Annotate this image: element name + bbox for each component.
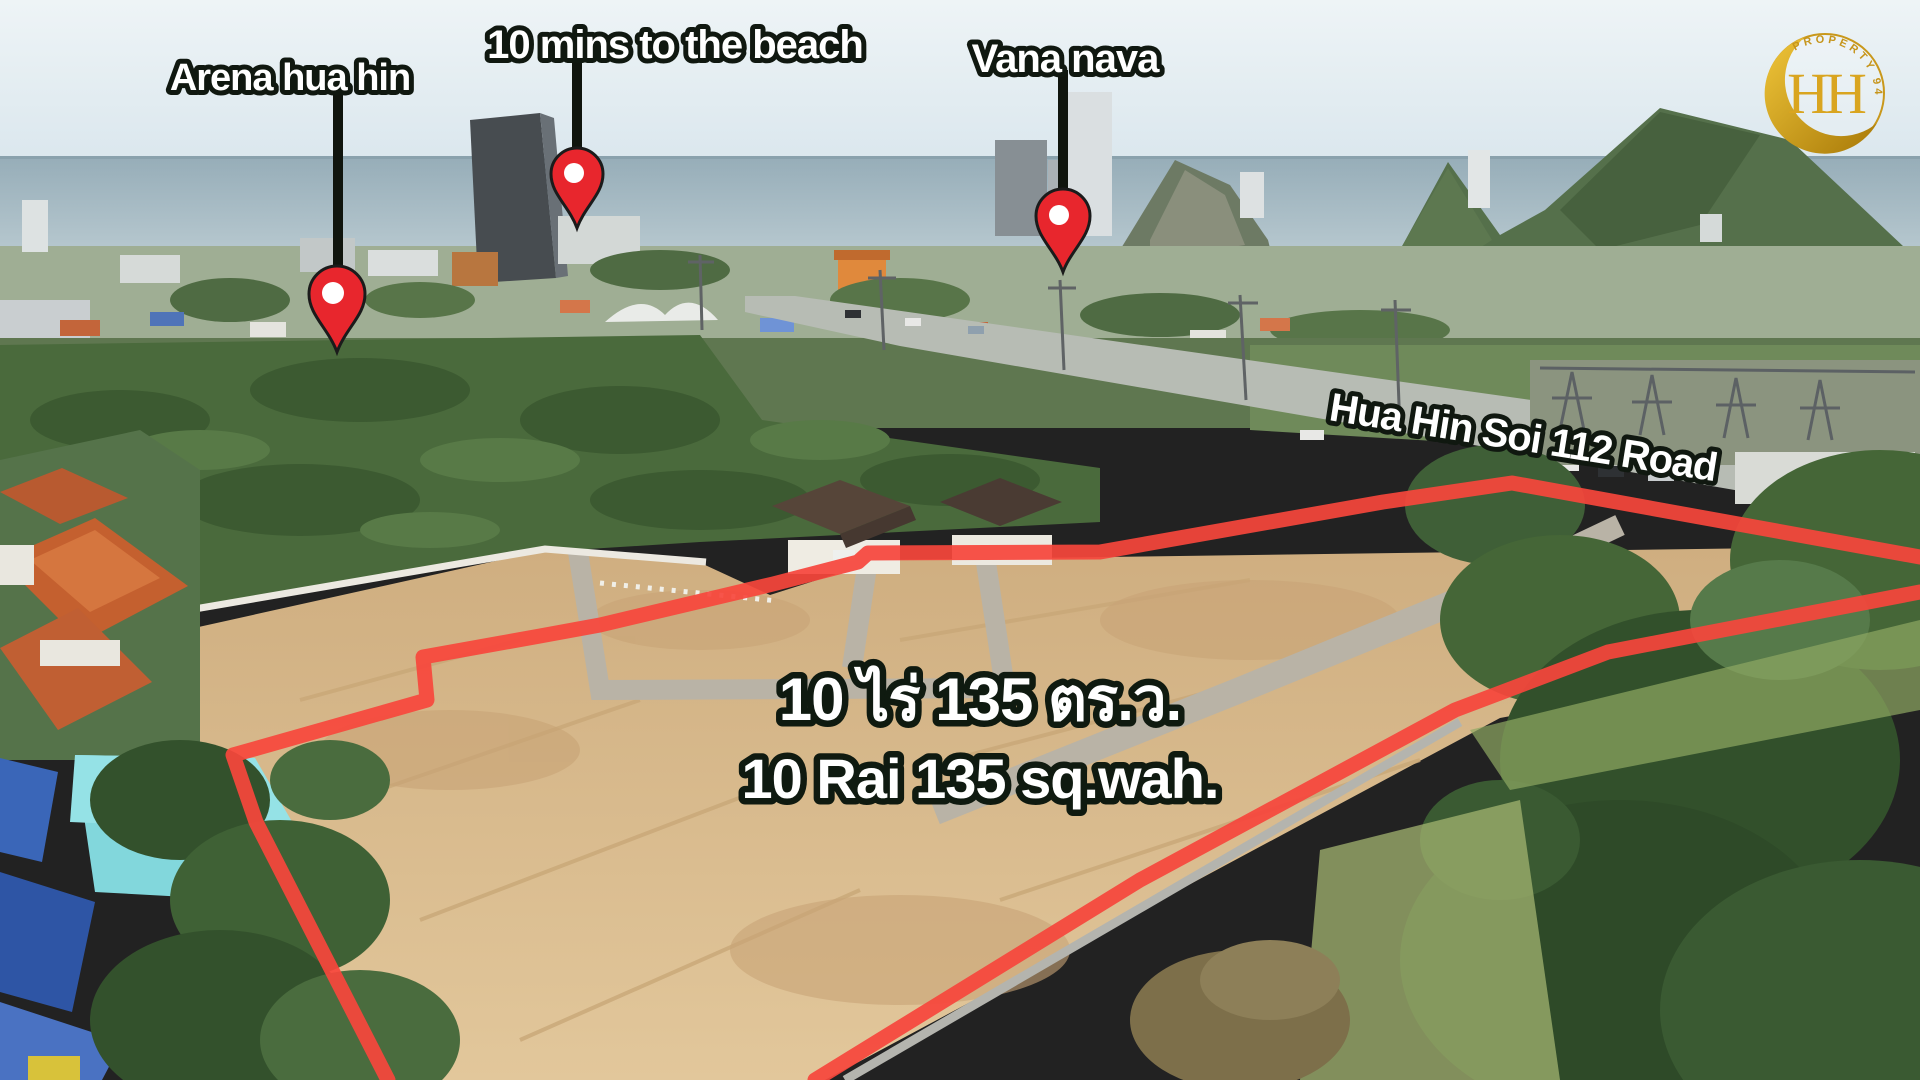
- pin-dot: [564, 163, 584, 183]
- label-10-mins-to-beach: 10 mins to the beach: [487, 23, 863, 67]
- label-arena-hua-hin: Arena hua hin: [170, 57, 410, 99]
- pin-dot: [322, 282, 344, 304]
- pin-dot: [1049, 205, 1069, 225]
- brand-logo: HH PROPERTY 94: [1765, 34, 1884, 154]
- area-size-thai: 10 ไร่ 135 ตร.ว.: [779, 664, 1181, 733]
- aerial-photo-stage: Arena hua hin 10 mins to the beach Vana …: [0, 0, 1920, 1080]
- label-vana-nava: Vana nava: [972, 37, 1160, 81]
- area-size-english: 10 Rai 135 sq.wah.: [742, 747, 1219, 810]
- logo-monogram: HH: [1787, 61, 1866, 126]
- aerial-photo: Arena hua hin 10 mins to the beach Vana …: [0, 0, 1920, 1080]
